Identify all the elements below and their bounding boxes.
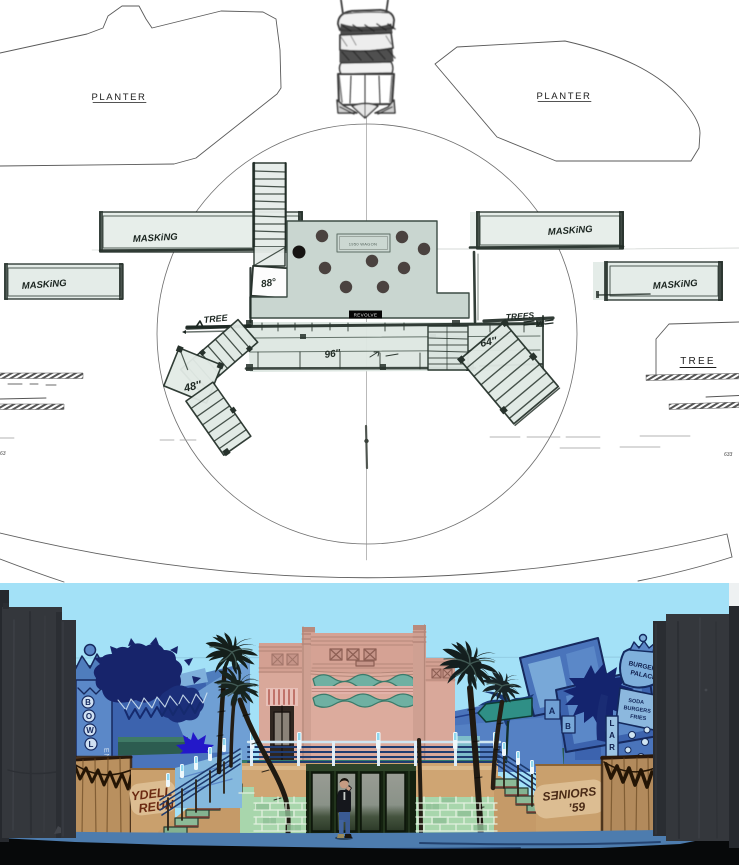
svg-text:W: W — [86, 726, 94, 735]
svg-text:REVOLVE: REVOLVE — [354, 313, 378, 318]
svg-text:VI: VI — [536, 319, 544, 328]
svg-text:’59: ’59 — [568, 799, 586, 815]
svg-text:PLANTER: PLANTER — [536, 91, 591, 102]
svg-text:PLANTER: PLANTER — [91, 92, 146, 103]
svg-text:633: 633 — [724, 452, 733, 458]
svg-text:L: L — [89, 740, 94, 749]
svg-text:R: R — [609, 743, 615, 752]
svg-text:TREE: TREE — [203, 312, 229, 325]
svg-text:1950 WAGON: 1950 WAGON — [349, 242, 377, 247]
svg-text:O: O — [86, 712, 92, 721]
svg-text:63: 63 — [0, 451, 6, 457]
svg-text:B: B — [85, 698, 91, 707]
svg-text:TREES: TREES — [505, 310, 534, 322]
svg-text:B: B — [565, 722, 571, 731]
svg-text:A: A — [609, 731, 615, 740]
svg-text:A: A — [549, 706, 556, 716]
svg-text:L: L — [610, 719, 615, 728]
svg-text:TREE: TREE — [680, 356, 715, 367]
